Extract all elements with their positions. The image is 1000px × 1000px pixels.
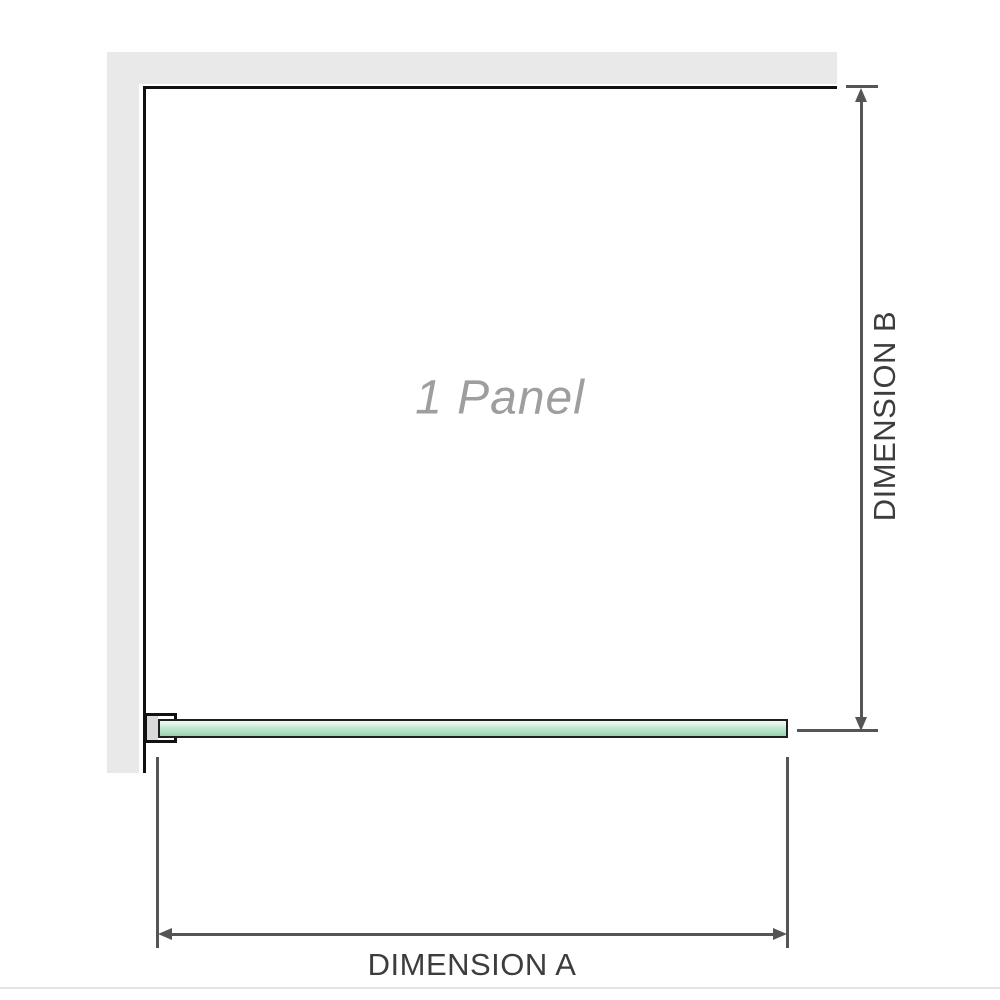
- panel-area-outline: [143, 86, 837, 773]
- wall-left: [107, 52, 139, 773]
- panel-count-label: 1 Panel: [415, 370, 585, 425]
- dimension-a-label: DIMENSION A: [368, 947, 577, 983]
- arrow-down-icon: [855, 717, 867, 731]
- image-bottom-border: [0, 987, 1000, 989]
- dimension-a-left-tick: [156, 757, 159, 948]
- shower-panel-diagram: 1 Panel DIMENSION B DIMENSION A: [0, 0, 1000, 1000]
- arrow-right-icon: [773, 928, 787, 940]
- arrow-left-icon: [158, 928, 172, 940]
- dimension-b-line: [860, 98, 863, 720]
- dimension-b-label: DIMENSION B: [867, 311, 903, 521]
- dimension-a-right-tick: [786, 757, 789, 948]
- bracket-pad: [147, 716, 158, 740]
- arrow-up-icon: [855, 88, 867, 102]
- glass-panel: [158, 719, 788, 738]
- dimension-a-line: [170, 933, 775, 936]
- wall-top: [107, 52, 837, 84]
